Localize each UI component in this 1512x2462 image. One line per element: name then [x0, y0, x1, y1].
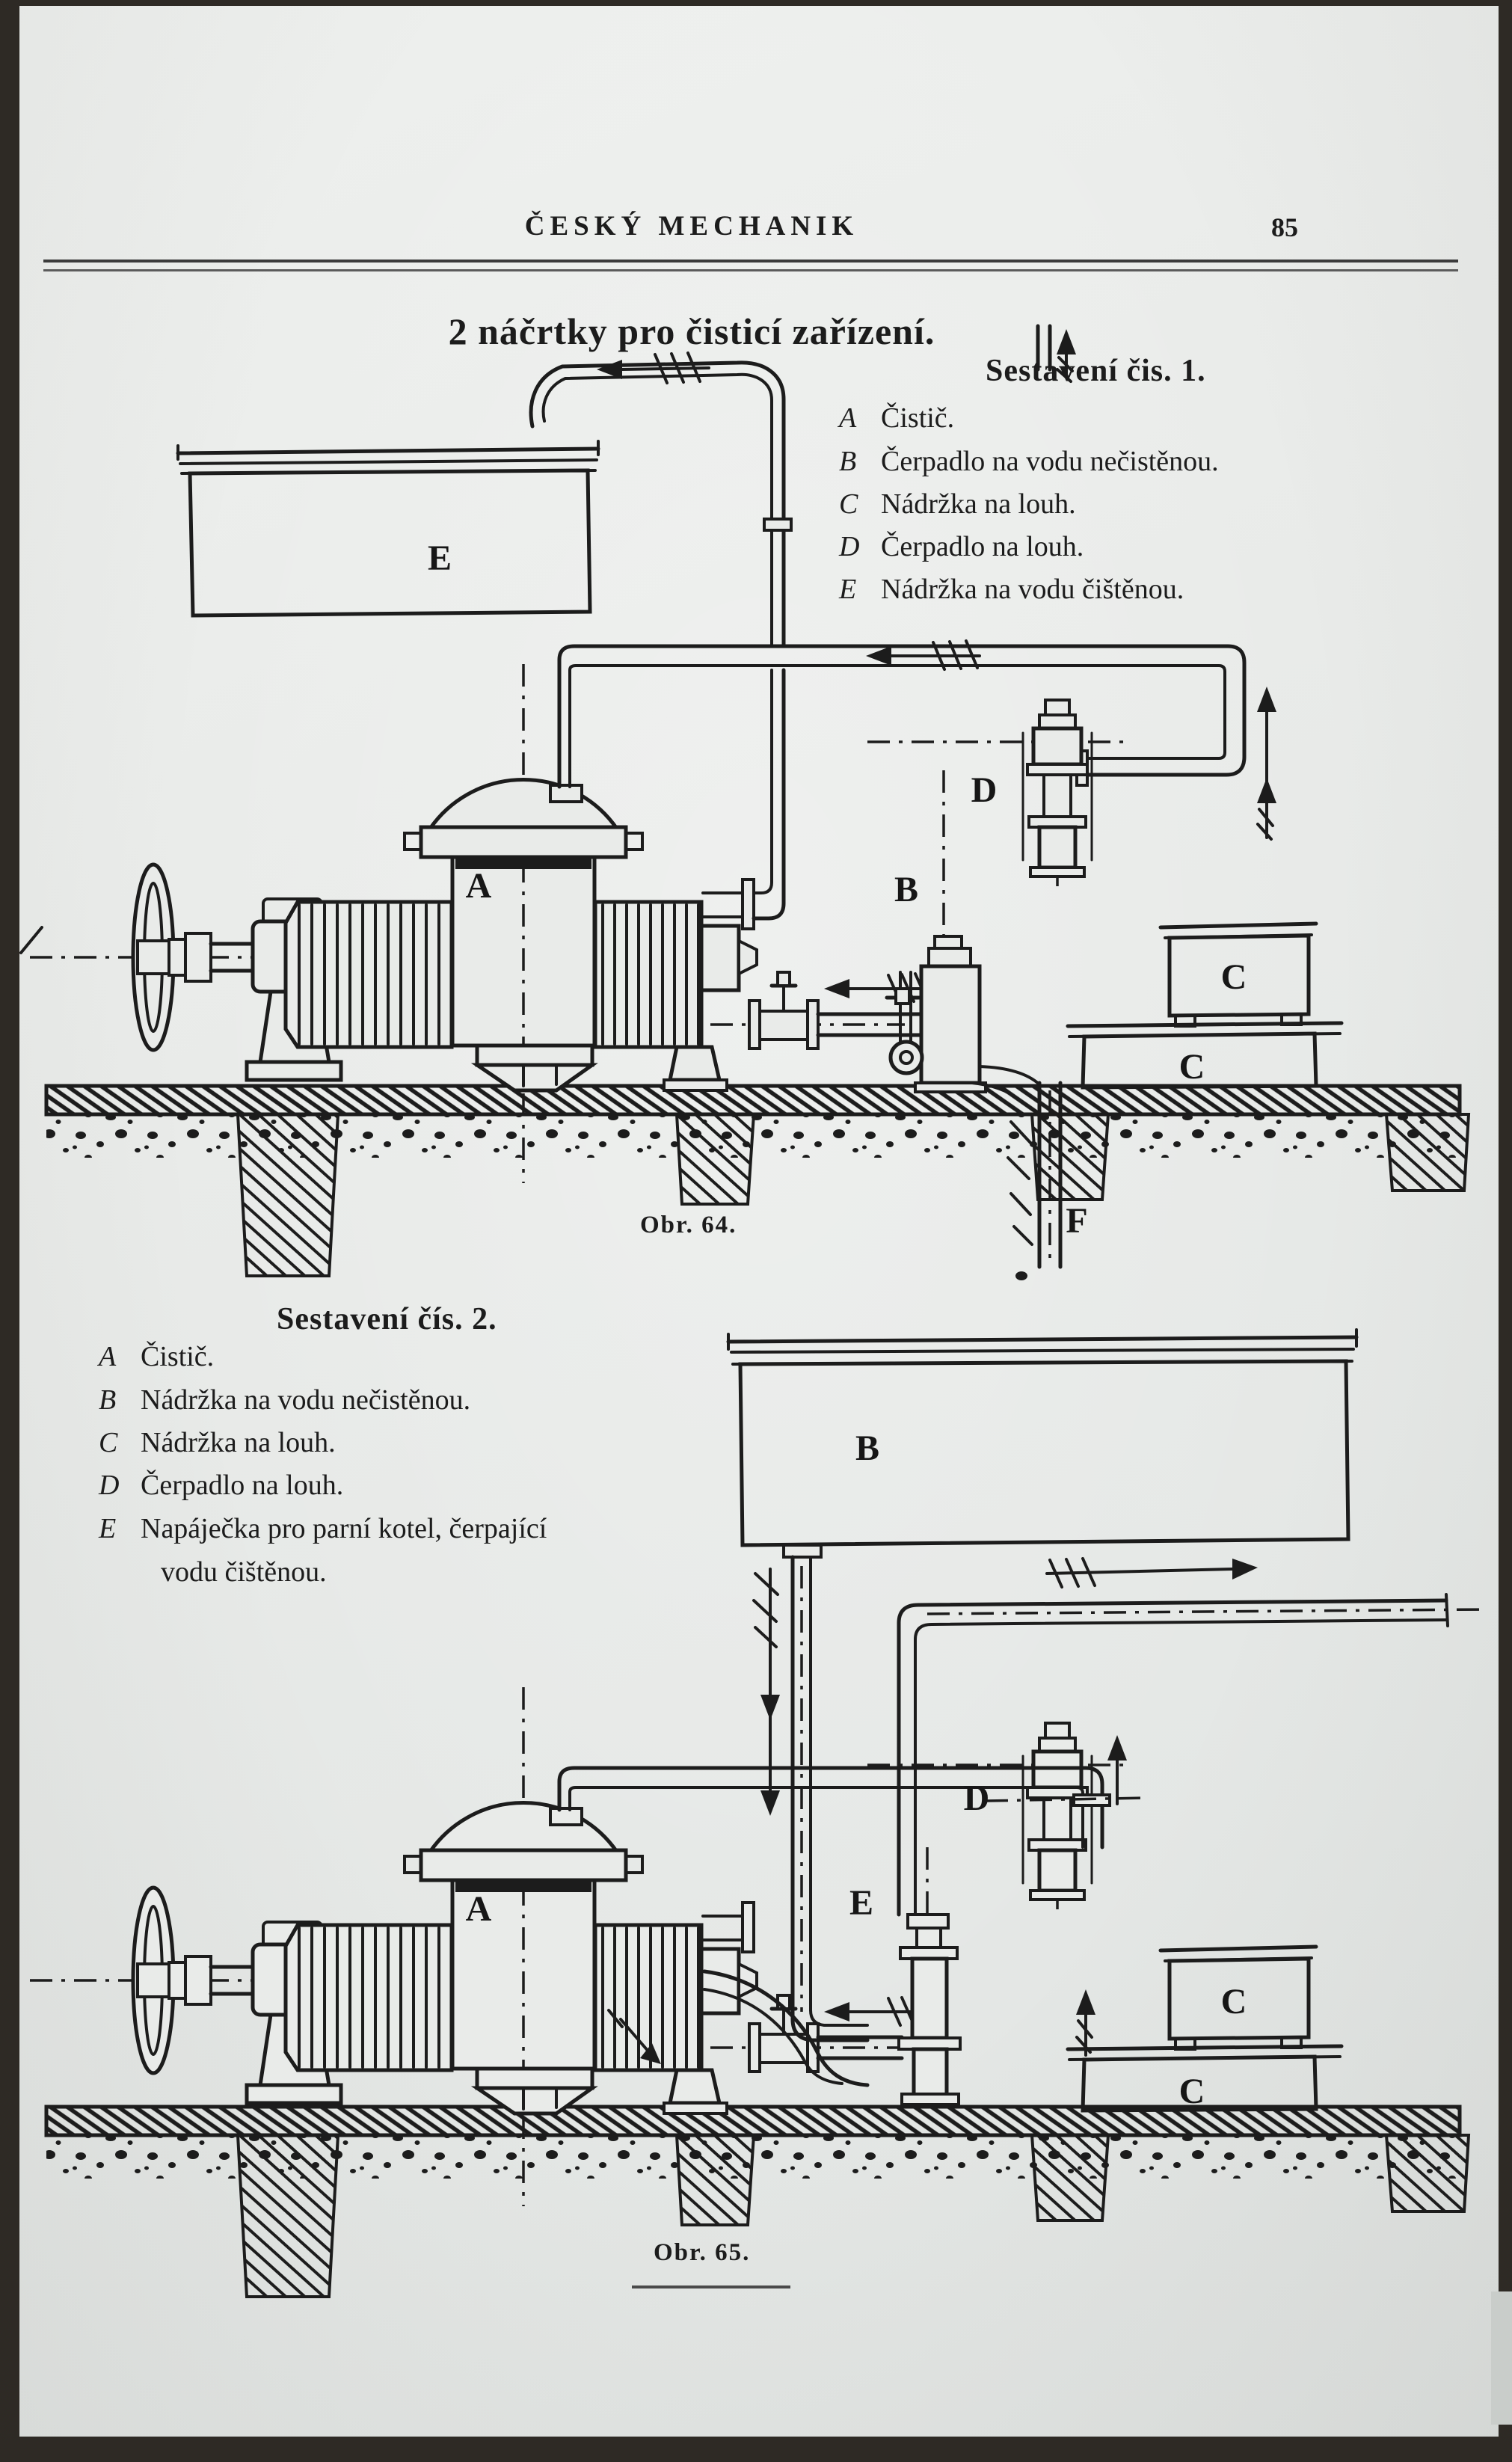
legend-key: D — [99, 1469, 141, 1502]
fig1-tank-e — [178, 441, 598, 615]
fig2-legend-item-d: DČerpadlo na louh. — [99, 1469, 343, 1502]
legend-text: Nádržka na louh. — [881, 488, 1076, 520]
fig1-caption: Obr. 64. — [640, 1212, 737, 1239]
legend-key: B — [99, 1384, 141, 1416]
fig1-legend-item-a: AČistič. — [839, 402, 954, 435]
legend-key: E — [99, 1512, 141, 1545]
pump-d — [867, 699, 1129, 886]
legend-key: E — [839, 573, 881, 606]
fig2-caption-rule — [632, 2286, 790, 2288]
legend-key: C — [839, 488, 881, 521]
legend-text: Čistič. — [881, 402, 954, 434]
fig1-legend-heading: Sestavení čis. 1. — [986, 353, 1206, 389]
page-number: 85 — [1271, 212, 1298, 243]
fig1-label-tank-e: E — [428, 538, 452, 578]
legend-text: Napáječka pro parní kotel, čerpající — [141, 1513, 547, 1544]
fig1-legend-item-b: BČerpadlo na vodu nečistěnou. — [839, 445, 1219, 478]
fig2-caption: Obr. 65. — [654, 2239, 750, 2267]
fig1-label-press-a: A — [466, 866, 492, 906]
fig2-legend-item-a: AČistič. — [99, 1340, 214, 1373]
journal-title: ČESKÝ MECHANIK — [0, 210, 1383, 242]
legend-text: Čistič. — [141, 1341, 214, 1372]
legend-text: Čerpadlo na louh. — [141, 1470, 343, 1501]
scanned-journal-page: E A B D C C F — [0, 0, 1512, 2462]
fig2-legend-item-b: BNádržka na vodu nečistěnou. — [99, 1384, 470, 1416]
legend-text: Nádržka na louh. — [141, 1427, 336, 1458]
legend-text: Nádržka na vodu čištěnou. — [881, 574, 1184, 605]
fig2-label-feeder-e: E — [849, 1883, 873, 1923]
fig1-label-pipe-f: F — [1066, 1201, 1087, 1241]
stray-mark — [21, 927, 42, 953]
fig2-label-pump-d: D — [964, 1778, 990, 1818]
legend-text: Čerpadlo na vodu nečistěnou. — [881, 446, 1219, 477]
fig2-legend-item-e-line2: vodu čištěnou. — [161, 1556, 327, 1588]
fig2-pump-d — [867, 1722, 1129, 1909]
legend-key: B — [839, 445, 881, 478]
drain-valve — [760, 1011, 808, 1040]
legend-text: vodu čištěnou. — [161, 1556, 327, 1588]
screw-end-block — [701, 926, 739, 990]
fig2-ground — [46, 2107, 1469, 2297]
legend-key: A — [839, 402, 881, 435]
fig2-tank-b — [728, 1330, 1356, 1557]
inlet-flange — [743, 879, 754, 929]
header-rule-bottom — [43, 269, 1458, 271]
fig2-feeder-e — [899, 1847, 960, 2105]
fig2-label-tank-c-lower: C — [1179, 2072, 1205, 2111]
fig1-legend-item-e: ENádržka na vodu čištěnou. — [839, 573, 1184, 606]
fig1-legend-item-c: CNádržka na louh. — [839, 488, 1076, 521]
legend-key: A — [99, 1340, 141, 1373]
technical-diagrams: E A B D C C F — [0, 0, 1512, 2462]
fig2-legend-item-c: CNádržka na louh. — [99, 1426, 336, 1459]
fig1-label-pump-b: B — [894, 870, 918, 909]
fig1-legend-item-d: DČerpadlo na louh. — [839, 530, 1084, 563]
fig2-label-tank-b: B — [855, 1428, 879, 1468]
fig1-label-tank-c-upper: C — [1221, 957, 1247, 997]
fig1-pump-b — [887, 770, 1039, 1099]
fig2-label-tank-c-upper: C — [1221, 1982, 1247, 2022]
header-rule-top — [43, 260, 1458, 263]
scan-edge-notch — [1491, 2291, 1512, 2425]
press-support — [670, 1047, 719, 1080]
legend-text: Čerpadlo na louh. — [881, 531, 1084, 562]
ground-section — [46, 1086, 1469, 1276]
fig1-label-tank-c-lower: C — [1179, 1047, 1205, 1087]
fig2-legend-item-e: ENapáječka pro parní kotel, čerpající — [99, 1512, 547, 1545]
fig1-label-pump-d: D — [971, 770, 998, 810]
legend-text: Nádržka na vodu nečistěnou. — [141, 1384, 470, 1416]
article-title: 2 náčrtky pro čisticí zařízení. — [314, 310, 1069, 353]
legend-key: C — [99, 1426, 141, 1459]
press-dome — [430, 779, 617, 829]
fig2-label-press-a: A — [466, 1889, 492, 1929]
legend-key: D — [839, 530, 881, 563]
fig2-legend-heading: Sestavení čís. 2. — [277, 1301, 497, 1337]
